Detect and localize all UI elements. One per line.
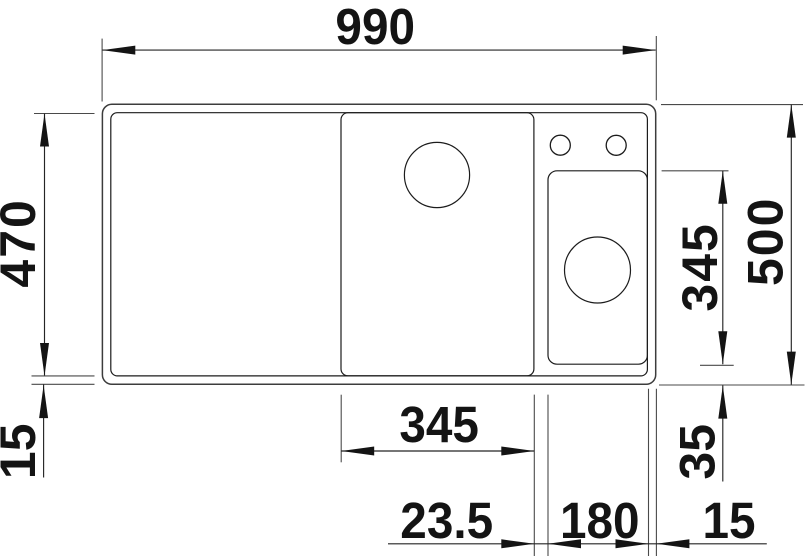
svg-text:470: 470 (0, 198, 46, 287)
svg-text:15: 15 (702, 492, 755, 549)
svg-text:15: 15 (0, 423, 46, 479)
svg-text:990: 990 (335, 0, 415, 55)
svg-text:500: 500 (737, 197, 793, 286)
svg-text:345: 345 (399, 396, 479, 453)
svg-text:180: 180 (560, 492, 640, 549)
svg-text:35: 35 (669, 424, 725, 480)
svg-text:23.5: 23.5 (400, 492, 493, 549)
svg-text:345: 345 (672, 222, 728, 311)
